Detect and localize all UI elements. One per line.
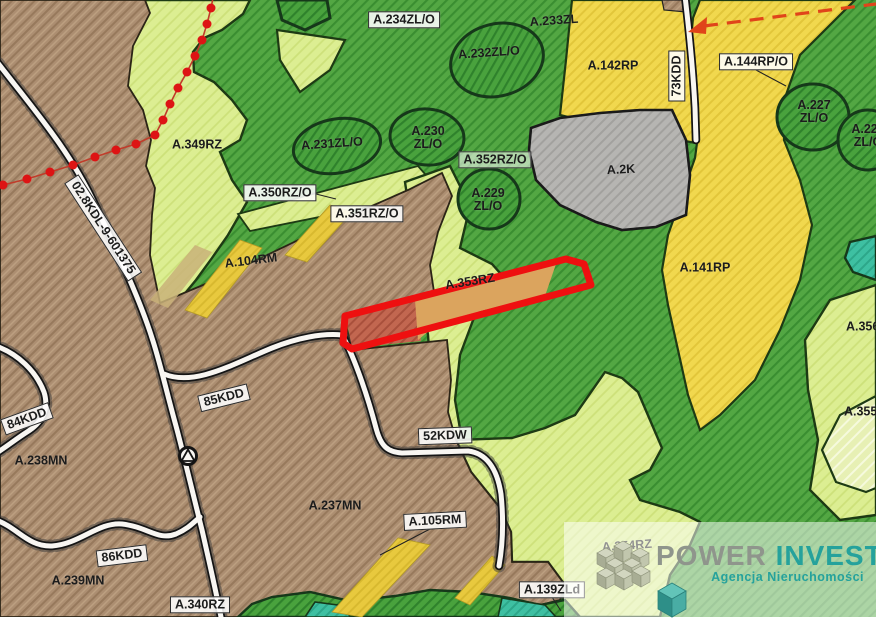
zoning-map: A.234ZL/OA.232ZL/OA.233ZLA.142RP73KDDA.1… <box>0 0 876 617</box>
brand-subtitle: Agencja Nieruchomości <box>656 570 864 584</box>
region-forest-a229 <box>458 169 520 229</box>
brand-invest-text: INVEST <box>776 540 876 571</box>
brand-power-text: POWER <box>656 540 767 571</box>
brand-logo: POWER INVEST Agencja Nieruchomości <box>576 530 868 614</box>
teal-cube-icon <box>658 583 686 617</box>
brand-name: POWER INVEST <box>656 540 868 572</box>
roundabout-symbol <box>180 448 197 465</box>
